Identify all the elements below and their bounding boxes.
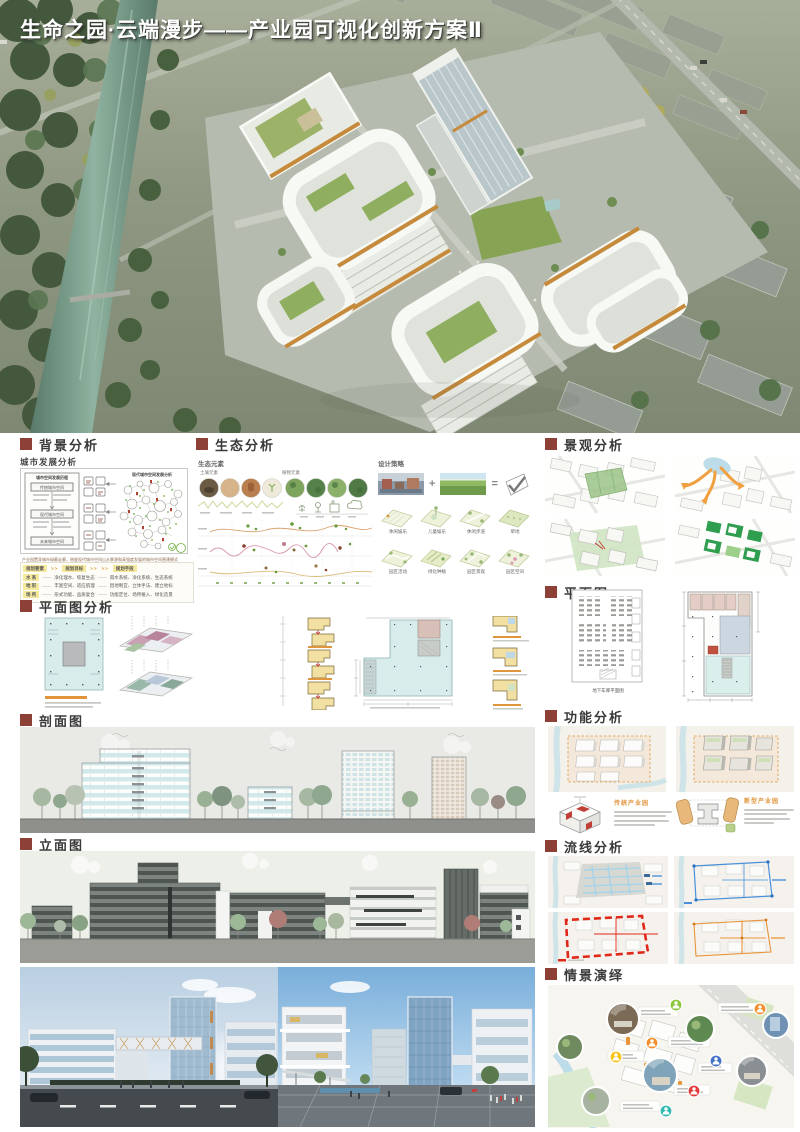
scenario-section-header: 情景演绎 — [545, 967, 624, 981]
flow-step-2: 现代城市空间 — [40, 511, 64, 517]
section-drawing — [20, 727, 535, 833]
eco-tile: 休闲步道 — [458, 504, 494, 542]
network-diagram-title: 现代城市空间发展分析 — [132, 471, 172, 477]
eco-tile: 园区活动 — [380, 544, 416, 582]
plan-analysis-diagrams — [20, 616, 535, 710]
checkmark-icon — [503, 472, 529, 496]
design-strategy-label: 设计策略 — [378, 458, 404, 468]
green-field-thumb — [440, 473, 486, 495]
section-marker-icon — [20, 714, 32, 726]
flow-step-1: 传统城市空间 — [40, 484, 64, 490]
new-park-label: 新型产业园 — [744, 796, 779, 805]
flow-step-3: 未来城市空间 — [40, 538, 64, 544]
landscape-section-title: 景观分析 — [564, 435, 624, 454]
traditional-park-diagram — [552, 796, 608, 834]
elevation-section-header: 立面图 — [20, 837, 84, 851]
section-marker-icon — [545, 968, 557, 980]
eco-element-circles — [198, 476, 370, 500]
ecology-section-title: 生态分析 — [215, 435, 275, 454]
landscape-diagrams — [545, 456, 795, 576]
new-park-text — [744, 806, 794, 827]
poster-board: 生命之园·云端漫步——产业园可视化创新方案Ⅱ 背景分析 城市发展分析 城市空间发… — [0, 0, 800, 1132]
function-site-diagrams — [548, 726, 794, 792]
garage-plan-drawing — [570, 588, 646, 686]
background-subtitle: 城市发展分析 — [20, 456, 77, 468]
table-header-goal: 规划目标 — [62, 565, 86, 572]
table-header-means: 规划手段 — [113, 565, 137, 572]
plan-analysis-section-header: 平面图分析 — [20, 599, 114, 613]
scenario-section-title: 情景演绎 — [564, 965, 624, 984]
eco-elements-label: 生态元素 — [198, 458, 224, 468]
poster-title: 生命之园·云端漫步——产业园可视化创新方案Ⅱ — [20, 14, 483, 44]
traditional-park-text — [614, 808, 672, 829]
background-section-title: 背景分析 — [39, 435, 99, 454]
background-section-header: 背景分析 — [20, 437, 99, 451]
eco-tile: 儿童娱乐 — [419, 504, 455, 542]
circulation-section-title: 流线分析 — [564, 837, 624, 856]
section-marker-icon — [545, 710, 557, 722]
plan-analysis-section-title: 平面图分析 — [39, 597, 114, 616]
section-marker-icon — [196, 438, 208, 450]
eco-tile: 园区景观 — [458, 544, 494, 582]
table-header-element: 规划要素 — [23, 565, 47, 572]
eco-strategy-tiles: 休闲娱乐 儿童娱乐 休闲步道 草地 园区活动 绿化种植 园区景观 园区空间 — [380, 504, 533, 582]
ecology-section-header: 生态分析 — [196, 437, 275, 451]
table-row: 地 形—— 丰富空间、适应肌理—— 因地制宜、立体手法、建立地标 — [23, 583, 191, 590]
landscape-section-header: 景观分析 — [545, 437, 624, 451]
section-marker-icon — [20, 600, 32, 612]
street-perspective-rendering — [20, 967, 535, 1127]
eco-tile: 休闲娱乐 — [380, 504, 416, 542]
section-marker-icon — [20, 838, 32, 850]
section-marker-icon — [20, 438, 32, 450]
table-row: 水 系—— 净化理水、恢复生态—— 雨水系统、净化系统、生态系统 — [23, 574, 191, 581]
eco-tile: 草地 — [497, 504, 533, 542]
garage-plan-caption: 地下车库平面图 — [566, 688, 650, 694]
section-marker-icon — [545, 438, 557, 450]
traditional-park-label: 传统产业园 — [614, 798, 649, 807]
city-development-diagram: 城市空间发展历程 传统城市空间 现代城市空间 未来城市空间 — [20, 468, 188, 554]
flow-box-title: 城市空间发展历程 — [36, 474, 68, 480]
circulation-diagrams — [548, 856, 794, 964]
eco-timeline-chart — [196, 498, 374, 590]
eco-tile: 绿化种植 — [419, 544, 455, 582]
eco-tile: 园区空间 — [497, 544, 533, 582]
city-photo-thumb — [378, 473, 424, 495]
design-strategy-formula: + = — [378, 472, 529, 496]
section-marker-icon — [545, 840, 557, 852]
circulation-section-header: 流线分析 — [545, 839, 624, 853]
function-section-header: 功能分析 — [545, 709, 624, 723]
section-drawing-header: 剖面图 — [20, 713, 84, 727]
new-park-diagram — [676, 792, 740, 834]
elevation-drawing — [20, 851, 535, 963]
aerial-rendering-image: 生命之园·云端漫步——产业园可视化创新方案Ⅱ — [0, 0, 800, 433]
scenario-map — [548, 985, 794, 1128]
building-floor-plan — [682, 586, 764, 702]
function-section-title: 功能分析 — [564, 707, 624, 726]
section-marker-icon — [545, 586, 557, 598]
